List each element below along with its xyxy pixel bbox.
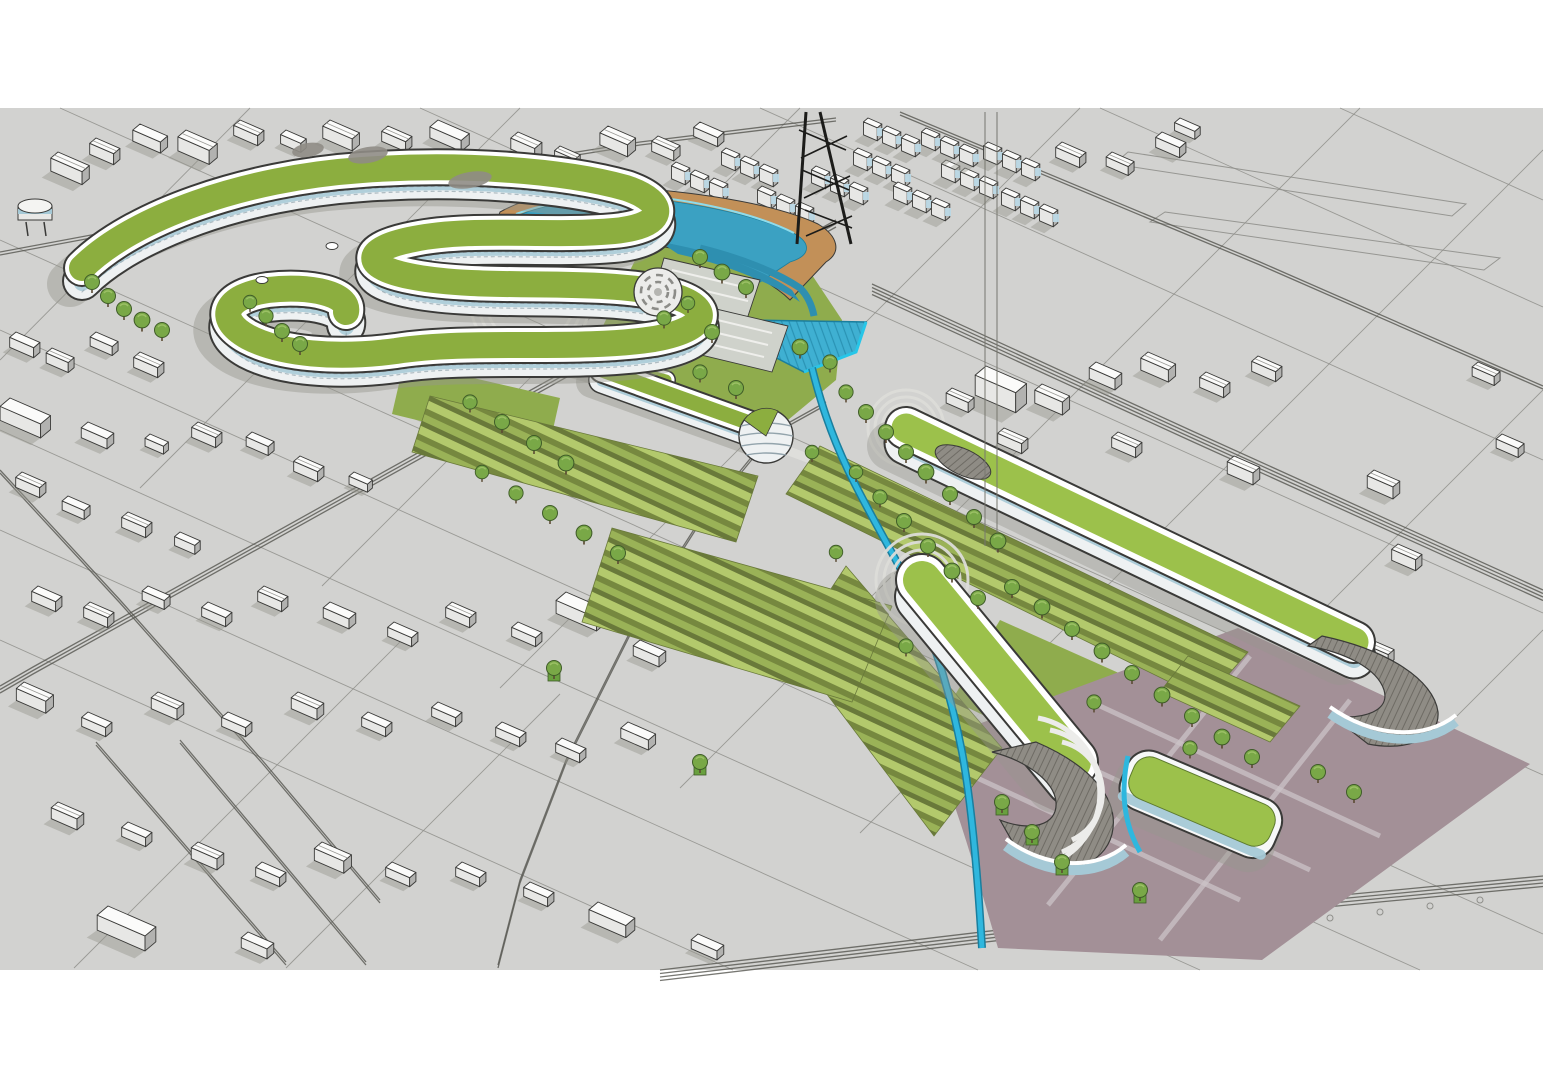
glass-pane	[1053, 214, 1059, 222]
glass-pane	[863, 192, 869, 200]
glass-pane	[773, 174, 779, 182]
glass-pane	[973, 154, 979, 162]
roof-vent	[326, 243, 338, 250]
glass-pane	[993, 186, 999, 194]
glass-pane	[1035, 168, 1041, 176]
masterplan-render	[0, 0, 1543, 1080]
drum-building	[739, 408, 793, 463]
glass-pane	[723, 188, 729, 196]
spiral-ramp	[634, 268, 682, 316]
masterplan-svg	[0, 0, 1543, 1080]
glass-pane	[905, 174, 911, 182]
roof-vent	[256, 277, 268, 284]
glass-pane	[945, 208, 951, 216]
glass-pane	[915, 144, 921, 152]
